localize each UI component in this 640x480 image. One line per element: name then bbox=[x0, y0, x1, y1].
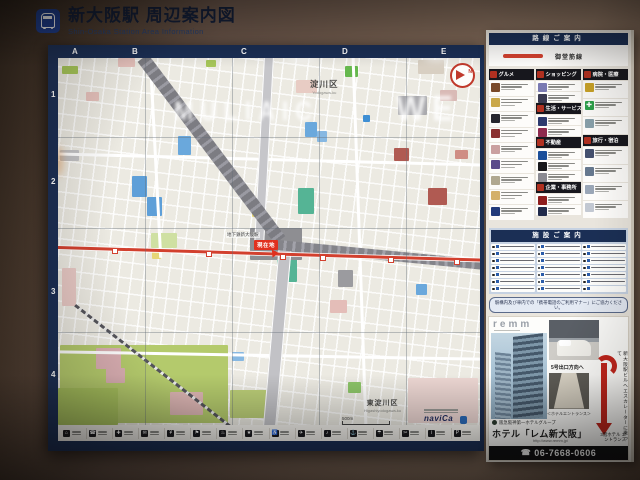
category-header: 病院・医療 bbox=[583, 69, 628, 80]
advertiser-logo bbox=[491, 191, 500, 200]
facility-item bbox=[582, 286, 626, 292]
phone-icon bbox=[492, 260, 495, 263]
facility-name bbox=[591, 267, 626, 268]
floor-note: 3階ホテル エントランス bbox=[600, 432, 626, 442]
grid-column-letter: C bbox=[241, 47, 247, 56]
phone-icon bbox=[538, 288, 541, 291]
ad-text bbox=[595, 83, 627, 97]
facility-item bbox=[491, 251, 535, 257]
advertiser-logo bbox=[538, 117, 547, 126]
advertiser-logo bbox=[491, 83, 500, 92]
facility-icon bbox=[496, 280, 499, 283]
ad-tile bbox=[536, 81, 581, 91]
legend-item: ♪ bbox=[321, 428, 347, 439]
facility-name bbox=[591, 260, 626, 261]
legend-icon: ★ bbox=[245, 430, 252, 437]
ad-grid: グルメショッピング生活・サービス不動産企業・事務所病院・医療✚旅行・宿泊 bbox=[489, 69, 628, 226]
ad-tile bbox=[583, 117, 628, 134]
facility-item bbox=[537, 244, 581, 250]
ad-text bbox=[595, 185, 627, 199]
ad-text bbox=[595, 203, 627, 217]
facility-name bbox=[545, 274, 580, 275]
advertiser-logo bbox=[491, 160, 500, 169]
midosuji-line-swatch bbox=[503, 54, 543, 58]
ad-text bbox=[501, 191, 533, 203]
map-building-block bbox=[62, 66, 78, 74]
subway-station-marker bbox=[320, 255, 326, 261]
legend-icon: P bbox=[454, 430, 461, 437]
ad-tile bbox=[536, 126, 581, 136]
ad-tile bbox=[489, 174, 534, 189]
facility-section-header: 施設ご案内 bbox=[491, 230, 626, 242]
advertiser-logo bbox=[491, 129, 500, 138]
ward-label-higashiyodogawa: 東淀川区 Higashiyodogawa-ku bbox=[364, 398, 401, 413]
advertiser-logo bbox=[585, 185, 594, 194]
facility-item bbox=[537, 279, 581, 285]
category-header: ショッピング bbox=[536, 69, 581, 80]
ad-text bbox=[548, 94, 580, 101]
facility-item bbox=[491, 279, 535, 285]
ad-tile bbox=[536, 92, 581, 102]
category-icon bbox=[584, 71, 591, 78]
advertiser-logo bbox=[585, 167, 594, 176]
ad-text bbox=[595, 149, 627, 163]
map-credit-logo: naviCa bbox=[424, 408, 458, 423]
map-building-block bbox=[151, 233, 177, 248]
phone-icon bbox=[492, 281, 495, 284]
phone-icon bbox=[538, 267, 541, 270]
ad-text bbox=[501, 114, 533, 126]
ad-tile bbox=[536, 149, 581, 159]
ad-tile bbox=[489, 205, 534, 220]
legend-item: ♨ bbox=[216, 428, 242, 439]
facility-name bbox=[545, 260, 580, 261]
category-icon bbox=[537, 139, 544, 146]
grid-line bbox=[319, 58, 320, 425]
map-building-block bbox=[428, 188, 447, 205]
legend-icon: ⚑ bbox=[193, 430, 200, 437]
ad-tile bbox=[489, 159, 534, 174]
legend-label bbox=[202, 430, 211, 436]
glass-reflection-text: WE bbox=[396, 88, 460, 129]
map-bottom-frame bbox=[48, 441, 484, 451]
entrance-caption: ＜ホテルエントランス＞ bbox=[547, 411, 591, 417]
category-label: 旅行・宿泊 bbox=[593, 137, 619, 144]
phone-icon bbox=[583, 260, 586, 263]
facility-grid bbox=[491, 244, 626, 292]
map-board: ABCDE 1234 淀川区 Yodogawa-ku 東淀川区 Higashiy… bbox=[48, 45, 484, 451]
wall-sign-header: 新大阪駅 周辺案内図 Shin-Osaka Station Area Infor… bbox=[36, 6, 236, 36]
scale-bar: 500m bbox=[342, 416, 390, 425]
ad-text bbox=[595, 101, 627, 115]
grid-row-number: 2 bbox=[51, 177, 55, 186]
facility-item bbox=[582, 244, 626, 250]
facility-name bbox=[591, 281, 626, 282]
facility-icon bbox=[587, 245, 590, 248]
legend-label bbox=[462, 430, 471, 436]
escalator-note: 新大阪駅ビルへエスカレーターに乗って bbox=[615, 351, 627, 443]
phone-icon bbox=[538, 281, 541, 284]
map-building-block bbox=[298, 188, 314, 214]
advertiser-logo bbox=[538, 162, 547, 171]
facility-item bbox=[491, 286, 535, 292]
facility-name bbox=[500, 267, 535, 268]
facility-item bbox=[491, 265, 535, 271]
map-legend: ⌂☎✚✉¥⚑♨★♿✈♪⚓☂✂iP bbox=[58, 425, 480, 441]
remm-brand-logo: remm bbox=[493, 319, 532, 330]
map-building-block bbox=[418, 60, 444, 74]
ad-tile bbox=[536, 171, 581, 181]
ad-tile bbox=[489, 97, 534, 112]
hotel-url: http://www.remm.jp/ bbox=[533, 438, 568, 443]
facility-item bbox=[491, 244, 535, 250]
hotel-phone: ☎ 06-7668-0606 bbox=[489, 446, 628, 460]
category-icon bbox=[584, 137, 591, 144]
ad-text bbox=[595, 167, 627, 181]
facility-icon bbox=[587, 252, 590, 255]
phone-icon bbox=[492, 253, 495, 256]
ad-tile bbox=[536, 115, 581, 125]
legend-label bbox=[228, 430, 237, 436]
legend-label bbox=[436, 430, 445, 436]
legend-icon: ¥ bbox=[167, 430, 174, 437]
legend-label bbox=[410, 430, 419, 436]
map-building-block bbox=[62, 268, 76, 306]
facility-item bbox=[537, 251, 581, 257]
ad-text bbox=[548, 207, 580, 214]
facility-name bbox=[545, 267, 580, 268]
advertiser-logo bbox=[538, 173, 547, 182]
ad-text bbox=[548, 128, 580, 135]
map-right-frame bbox=[480, 58, 484, 425]
legend-icon: ☎ bbox=[89, 430, 96, 437]
road-horizontal-1 bbox=[58, 152, 480, 166]
facility-icon bbox=[541, 287, 544, 290]
compass-icon: N bbox=[450, 63, 475, 88]
grid-line bbox=[58, 137, 480, 138]
legend-icon: ⚓ bbox=[350, 430, 357, 437]
ad-text bbox=[501, 176, 533, 188]
route-legend: 御堂筋線 bbox=[489, 45, 628, 66]
ad-text bbox=[501, 129, 533, 141]
advertiser-logo bbox=[491, 207, 500, 216]
subway-station-marker bbox=[454, 259, 460, 265]
facility-name bbox=[545, 253, 580, 254]
phone-icon bbox=[492, 288, 495, 291]
midosuji-road-south bbox=[263, 243, 292, 425]
phone-icon bbox=[583, 274, 586, 277]
legend-label bbox=[332, 430, 341, 436]
hotel-room-photo bbox=[549, 320, 599, 360]
hotel-group-icon bbox=[492, 420, 497, 425]
route-section-header: 路線ご案内 bbox=[489, 33, 628, 45]
subway-station-marker bbox=[206, 251, 212, 257]
ad-text bbox=[548, 173, 580, 180]
station-label: 地下鉄新大阪駅 bbox=[226, 232, 260, 238]
ad-tile bbox=[489, 81, 534, 96]
sign-titles: 新大阪駅 周辺案内図 Shin-Osaka Station Area Infor… bbox=[68, 6, 236, 36]
map-building-block bbox=[348, 382, 361, 393]
facility-icon bbox=[496, 287, 499, 290]
grid-line bbox=[145, 58, 146, 425]
category-label: 生活・サービス bbox=[546, 105, 582, 112]
facility-item bbox=[491, 272, 535, 278]
facility-item bbox=[582, 258, 626, 264]
category-label: 不動産 bbox=[546, 139, 562, 146]
facility-name bbox=[500, 253, 535, 254]
ad-text bbox=[548, 83, 580, 90]
ad-tile bbox=[489, 190, 534, 205]
phone-icon: ☎ bbox=[521, 448, 531, 457]
ad-column: グルメ bbox=[489, 69, 534, 226]
ad-text bbox=[548, 162, 580, 169]
mascot-icon bbox=[460, 416, 467, 424]
ad-tile bbox=[489, 128, 534, 143]
manner-notice: 駅構内及び車内での「携帯電話のご利用マナー」にご協力ください。 bbox=[489, 297, 628, 313]
advertiser-logo bbox=[538, 207, 547, 216]
grid-line bbox=[58, 228, 480, 229]
legend-label bbox=[150, 430, 159, 436]
facility-name bbox=[545, 281, 580, 282]
category-label: グルメ bbox=[499, 71, 515, 78]
map-building-block bbox=[338, 270, 353, 287]
facility-item bbox=[537, 258, 581, 264]
ad-tile bbox=[489, 112, 534, 127]
ad-tile bbox=[583, 201, 628, 218]
category-header: 不動産 bbox=[536, 137, 581, 148]
phone-number: 06-7668-0606 bbox=[534, 448, 596, 458]
phone-icon bbox=[583, 253, 586, 256]
row-numbers: 1234 bbox=[48, 58, 58, 425]
advertiser-logo bbox=[585, 149, 594, 158]
category-icon bbox=[537, 105, 544, 112]
legend-icon: ♪ bbox=[324, 430, 331, 437]
phone-icon bbox=[492, 274, 495, 277]
category-header: 企業・事務所 bbox=[536, 182, 581, 193]
subway-station-marker bbox=[280, 254, 286, 260]
legend-item: ★ bbox=[242, 428, 268, 439]
category-icon bbox=[537, 71, 544, 78]
legend-item: ✚ bbox=[112, 428, 138, 439]
facility-icon bbox=[496, 252, 499, 255]
ad-column: ショッピング生活・サービス不動産企業・事務所 bbox=[536, 69, 581, 226]
ad-tile bbox=[489, 143, 534, 158]
advertiser-logo bbox=[491, 114, 500, 123]
legend-item: P bbox=[451, 428, 477, 439]
facility-name bbox=[500, 260, 535, 261]
ad-tile bbox=[583, 165, 628, 182]
page-title: 新大阪駅 周辺案内図 bbox=[68, 6, 236, 26]
ad-tile bbox=[583, 147, 628, 164]
hotel-entrance-photo bbox=[549, 373, 589, 409]
phone-icon bbox=[538, 253, 541, 256]
facility-icon bbox=[496, 273, 499, 276]
facility-name bbox=[545, 288, 580, 289]
legend-item: ☎ bbox=[86, 428, 112, 439]
subway-station-marker bbox=[112, 248, 118, 254]
ad-tile bbox=[583, 81, 628, 98]
grid-column-letter: B bbox=[132, 47, 138, 56]
map-building-block bbox=[330, 300, 347, 313]
train-icon bbox=[36, 9, 60, 33]
ad-text bbox=[548, 196, 580, 203]
map-building-block bbox=[86, 92, 99, 101]
facility-name bbox=[591, 253, 626, 254]
legend-icon: ♿ bbox=[272, 430, 279, 437]
legend-icon: ♨ bbox=[219, 430, 226, 437]
facility-name bbox=[500, 274, 535, 275]
map-building-block bbox=[106, 368, 125, 383]
ad-text bbox=[501, 160, 533, 172]
facility-name bbox=[591, 246, 626, 247]
map-building-block bbox=[178, 136, 191, 155]
legend-icon: ✈ bbox=[298, 430, 305, 437]
grid-column-letter: D bbox=[342, 47, 348, 56]
ad-text bbox=[501, 207, 533, 219]
legend-item: ⚑ bbox=[190, 428, 216, 439]
phone-icon bbox=[583, 281, 586, 284]
facility-icon bbox=[496, 245, 499, 248]
current-location-marker: 現在地 bbox=[254, 240, 278, 250]
legend-item: ⌂ bbox=[61, 428, 86, 439]
grid-line bbox=[58, 332, 480, 333]
facility-icon bbox=[587, 266, 590, 269]
ward-label-yodogawa: 淀川区 Yodogawa-ku bbox=[310, 78, 339, 95]
category-header: 旅行・宿泊 bbox=[583, 135, 628, 146]
facility-item bbox=[582, 251, 626, 257]
ad-tile bbox=[536, 160, 581, 170]
legend-icon: i bbox=[428, 430, 435, 437]
facility-name bbox=[545, 246, 580, 247]
legend-label bbox=[384, 430, 393, 436]
legend-icon: ⌂ bbox=[63, 430, 70, 437]
ad-text bbox=[548, 117, 580, 124]
phone-icon bbox=[583, 267, 586, 270]
phone-icon bbox=[538, 260, 541, 263]
facility-item bbox=[582, 265, 626, 271]
facility-item bbox=[491, 258, 535, 264]
facility-icon bbox=[541, 245, 544, 248]
legend-item: ⚓ bbox=[347, 428, 373, 439]
grid-row-number: 1 bbox=[51, 90, 55, 99]
legend-item: ¥ bbox=[164, 428, 190, 439]
map-building-block bbox=[416, 284, 427, 295]
facility-icon bbox=[541, 259, 544, 262]
facility-section: 施設ご案内 bbox=[489, 228, 628, 294]
advertiser-logo bbox=[538, 128, 547, 137]
legend-item: ✉ bbox=[138, 428, 164, 439]
facility-item bbox=[582, 272, 626, 278]
glass-reflection-text: MULIAIC bbox=[174, 96, 319, 127]
facility-icon bbox=[541, 252, 544, 255]
legend-label bbox=[124, 430, 133, 436]
facility-icon bbox=[587, 273, 590, 276]
legend-item: ✈ bbox=[295, 428, 321, 439]
facility-icon bbox=[496, 259, 499, 262]
route-line-name: 御堂筋線 bbox=[555, 52, 583, 61]
hotel-building-photo bbox=[491, 333, 547, 419]
facility-name bbox=[500, 246, 535, 247]
facility-name bbox=[591, 274, 626, 275]
ad-tile bbox=[583, 183, 628, 200]
advertiser-logo: ✚ bbox=[585, 101, 594, 110]
legend-icon: ✚ bbox=[115, 430, 122, 437]
category-label: 企業・事務所 bbox=[546, 184, 577, 191]
grid-column-letter: A bbox=[72, 47, 78, 56]
map-building-block bbox=[206, 60, 216, 67]
legend-icon: ✉ bbox=[141, 430, 148, 437]
grid-row-number: 3 bbox=[51, 287, 55, 296]
facility-icon bbox=[541, 266, 544, 269]
legend-item: i bbox=[425, 428, 451, 439]
category-icon bbox=[537, 184, 544, 191]
information-panel: 路線ご案内 御堂筋線 グルメショッピング生活・サービス不動産企業・事務所病院・医… bbox=[486, 30, 634, 462]
facility-name bbox=[500, 288, 535, 289]
facility-icon bbox=[587, 280, 590, 283]
facility-item bbox=[537, 286, 581, 292]
advertiser-logo bbox=[538, 94, 547, 103]
facility-icon bbox=[496, 266, 499, 269]
grid-row-number: 4 bbox=[51, 370, 55, 379]
legend-label bbox=[176, 430, 185, 436]
advertiser-logo bbox=[538, 196, 547, 205]
phone-icon bbox=[492, 267, 495, 270]
facility-icon bbox=[587, 287, 590, 290]
category-header: グルメ bbox=[489, 69, 534, 80]
column-letters: ABCDE bbox=[58, 45, 480, 58]
road-vertical-1 bbox=[352, 58, 367, 425]
phone-icon bbox=[583, 288, 586, 291]
category-label: ショッピング bbox=[546, 71, 577, 78]
ad-tile: ✚ bbox=[583, 99, 628, 116]
legend-label bbox=[72, 430, 81, 436]
ad-text bbox=[501, 145, 533, 157]
facility-icon bbox=[541, 280, 544, 283]
facility-name bbox=[500, 281, 535, 282]
grid-column-letter: E bbox=[441, 47, 446, 56]
advertiser-logo bbox=[585, 83, 594, 92]
ad-tile bbox=[536, 205, 581, 215]
advertiser-logo bbox=[491, 176, 500, 185]
legend-icon: ✂ bbox=[402, 430, 409, 437]
category-header: 生活・サービス bbox=[536, 103, 581, 114]
facility-item bbox=[537, 272, 581, 278]
legend-item: ✂ bbox=[399, 428, 425, 439]
facility-item bbox=[582, 279, 626, 285]
map-canvas: 淀川区 Yodogawa-ku 東淀川区 Higashiyodogawa-ku … bbox=[58, 58, 480, 425]
legend-label bbox=[98, 430, 107, 436]
category-icon bbox=[490, 71, 497, 78]
map-building-block bbox=[455, 150, 468, 159]
legend-item: ♿ bbox=[269, 428, 295, 439]
subway-station-marker bbox=[388, 257, 394, 263]
advertiser-logo bbox=[585, 119, 594, 128]
exit-direction-note: 5号出口方向へ bbox=[551, 364, 584, 371]
ad-column: 病院・医療✚旅行・宿泊 bbox=[583, 69, 628, 226]
facility-icon bbox=[541, 273, 544, 276]
hotel-ad: remm 5号出口方向へ ＜ホテルエントランス＞ 新大阪駅ビルへエスカレーターに… bbox=[489, 317, 628, 460]
down-arrow-icon bbox=[593, 355, 609, 437]
hotel-group: 阪急阪神第一ホテルグループ bbox=[492, 420, 556, 426]
ad-text bbox=[501, 83, 533, 95]
map-building-block bbox=[118, 58, 135, 67]
legend-label bbox=[306, 430, 315, 436]
map-building-block bbox=[363, 115, 370, 122]
ad-text bbox=[595, 119, 627, 133]
ad-text bbox=[548, 151, 580, 158]
phone-icon bbox=[538, 274, 541, 277]
phone-icon bbox=[583, 246, 586, 249]
